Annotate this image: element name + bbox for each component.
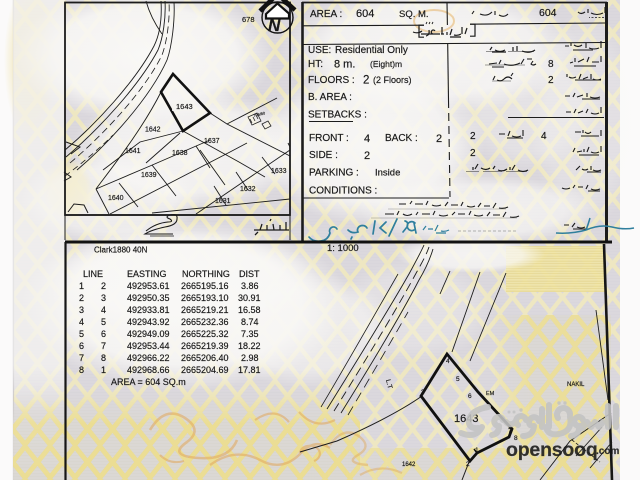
svg-text:2665195.16: 2665195.16 bbox=[181, 281, 229, 291]
svg-text:1641: 1641 bbox=[125, 148, 141, 155]
svg-text:2: 2 bbox=[548, 75, 554, 86]
svg-text:8 m.: 8 m. bbox=[334, 59, 355, 71]
svg-text:3: 3 bbox=[421, 389, 425, 396]
svg-text:492933.81: 492933.81 bbox=[127, 305, 170, 315]
svg-text:7: 7 bbox=[79, 353, 84, 363]
svg-text:7: 7 bbox=[508, 428, 512, 435]
svg-text:USE:: USE: bbox=[308, 45, 331, 56]
svg-text:6: 6 bbox=[79, 341, 84, 351]
svg-text:492966.22: 492966.22 bbox=[127, 353, 170, 363]
svg-text:opensooq: opensooq bbox=[506, 439, 598, 461]
svg-text:18.22: 18.22 bbox=[238, 341, 261, 351]
svg-text:.com: .com bbox=[596, 446, 619, 457]
svg-text:7.35: 7.35 bbox=[241, 329, 259, 339]
svg-text:2: 2 bbox=[79, 293, 84, 303]
svg-text:1643: 1643 bbox=[176, 102, 193, 111]
svg-text:2: 2 bbox=[470, 131, 476, 142]
svg-text:492953.44: 492953.44 bbox=[127, 341, 170, 351]
svg-text:4: 4 bbox=[79, 317, 84, 327]
svg-text:4: 4 bbox=[364, 133, 370, 145]
svg-text:6: 6 bbox=[101, 329, 106, 339]
svg-text:3: 3 bbox=[79, 305, 84, 315]
svg-text:2: 2 bbox=[363, 75, 369, 87]
svg-text:3.86: 3.86 bbox=[241, 281, 259, 291]
svg-text:8: 8 bbox=[548, 59, 554, 70]
svg-text:BACK :: BACK : bbox=[385, 133, 418, 144]
svg-text:492950.35: 492950.35 bbox=[127, 293, 170, 303]
svg-text:2: 2 bbox=[436, 133, 442, 145]
svg-text:4: 4 bbox=[101, 305, 106, 315]
svg-text:678: 678 bbox=[242, 15, 255, 24]
svg-text:PARKING :: PARKING : bbox=[309, 168, 359, 179]
svg-text:1642: 1642 bbox=[402, 462, 416, 468]
svg-text:2: 2 bbox=[364, 150, 370, 162]
svg-text:1633: 1633 bbox=[271, 168, 287, 175]
svg-text:B. AREA :: B. AREA : bbox=[308, 92, 352, 103]
svg-text:2: 2 bbox=[466, 461, 470, 468]
svg-text:5: 5 bbox=[101, 317, 106, 327]
svg-text:1637: 1637 bbox=[204, 138, 220, 145]
svg-text:2665193.10: 2665193.10 bbox=[181, 293, 229, 303]
svg-text:Clark1880 40N: Clark1880 40N bbox=[94, 246, 148, 255]
svg-text:1: 1 bbox=[79, 281, 84, 291]
svg-text:(2 Floors): (2 Floors) bbox=[373, 75, 412, 85]
svg-text:1632: 1632 bbox=[240, 186, 256, 193]
svg-text:2.98: 2.98 bbox=[241, 353, 259, 363]
svg-text:7: 7 bbox=[101, 341, 106, 351]
svg-text:492968.66: 492968.66 bbox=[127, 365, 170, 375]
svg-text:SIDE :: SIDE : bbox=[309, 150, 338, 161]
svg-text:HT:: HT: bbox=[308, 59, 323, 70]
svg-text:FLOORS :: FLOORS : bbox=[308, 75, 355, 86]
svg-text:4: 4 bbox=[541, 131, 547, 142]
svg-text:492943.92: 492943.92 bbox=[127, 317, 170, 327]
svg-text:SETBACKS :: SETBACKS : bbox=[308, 110, 367, 121]
svg-text:1: 1 bbox=[475, 447, 479, 454]
svg-text:30.91: 30.91 bbox=[238, 293, 261, 303]
svg-text:Inside: Inside bbox=[375, 168, 400, 179]
svg-text:2: 2 bbox=[470, 148, 476, 159]
svg-text:EASTING: EASTING bbox=[127, 269, 167, 279]
svg-text:Residential Only: Residential Only bbox=[335, 45, 408, 56]
svg-text:EM: EM bbox=[486, 391, 495, 397]
svg-text:CONDITIONS :: CONDITIONS : bbox=[309, 186, 377, 197]
svg-text:604: 604 bbox=[539, 7, 557, 19]
svg-text:2665219.39: 2665219.39 bbox=[181, 341, 229, 351]
svg-text:492949.09: 492949.09 bbox=[127, 329, 170, 339]
svg-text:2665204.69: 2665204.69 bbox=[181, 365, 229, 375]
svg-text:5: 5 bbox=[456, 376, 460, 383]
svg-text:FRONT :: FRONT : bbox=[309, 133, 349, 144]
svg-text:2665232.36: 2665232.36 bbox=[181, 317, 229, 327]
svg-text:2665225.32: 2665225.32 bbox=[181, 329, 229, 339]
svg-text:NAKIL: NAKIL bbox=[567, 382, 585, 388]
svg-text:(Eight)m: (Eight)m bbox=[370, 59, 402, 69]
svg-text:NORTHING: NORTHING bbox=[182, 269, 230, 279]
svg-text:SQ. M.: SQ. M. bbox=[399, 9, 429, 20]
svg-text:1642: 1642 bbox=[145, 127, 161, 134]
svg-text:8: 8 bbox=[101, 353, 106, 363]
svg-text:2665219.21: 2665219.21 bbox=[181, 305, 229, 315]
svg-text:5: 5 bbox=[79, 329, 84, 339]
svg-text:16.58: 16.58 bbox=[238, 305, 261, 315]
svg-text:1638: 1638 bbox=[172, 150, 188, 157]
svg-text:1631: 1631 bbox=[215, 198, 231, 205]
svg-text:6: 6 bbox=[468, 393, 472, 400]
svg-text:8: 8 bbox=[79, 365, 84, 375]
svg-text:1: 1 bbox=[101, 365, 106, 375]
svg-text:604: 604 bbox=[356, 8, 374, 20]
svg-text:AREA = 604 SQ.m: AREA = 604 SQ.m bbox=[111, 377, 186, 387]
svg-text:DIST: DIST bbox=[239, 269, 260, 279]
svg-text:LINE: LINE bbox=[83, 269, 103, 279]
svg-text:8.74: 8.74 bbox=[241, 317, 259, 327]
svg-text:1640: 1640 bbox=[108, 195, 124, 202]
svg-text:2665206.40: 2665206.40 bbox=[181, 353, 229, 363]
svg-text:492953.61: 492953.61 bbox=[127, 281, 170, 291]
svg-text:1639: 1639 bbox=[141, 172, 157, 179]
svg-text:N: N bbox=[268, 16, 281, 35]
svg-text:4: 4 bbox=[446, 358, 450, 365]
svg-text:2: 2 bbox=[101, 281, 106, 291]
svg-text:AREA :: AREA : bbox=[310, 9, 342, 20]
svg-text:17.81: 17.81 bbox=[238, 365, 261, 375]
svg-text:1: 1000: 1: 1000 bbox=[327, 243, 359, 254]
svg-text:3: 3 bbox=[101, 293, 106, 303]
